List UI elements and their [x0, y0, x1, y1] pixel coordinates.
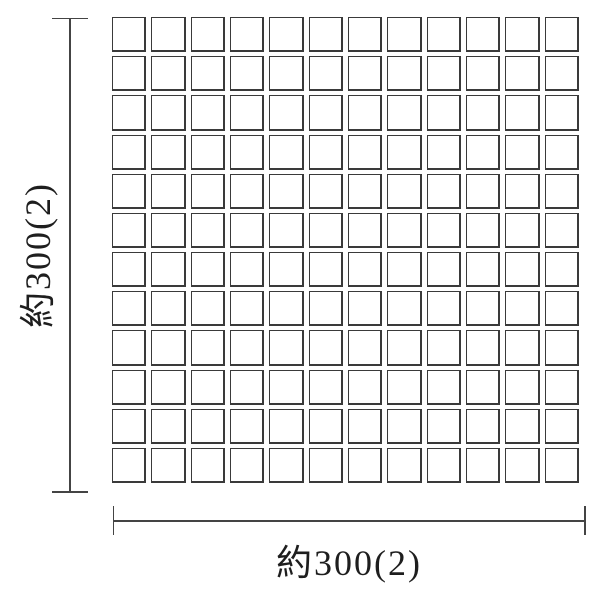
- tile: [505, 17, 539, 52]
- tile: [269, 95, 303, 130]
- tile: [151, 330, 185, 365]
- tile: [427, 174, 461, 209]
- tile: [387, 252, 421, 287]
- tile: [545, 174, 579, 209]
- tile: [269, 448, 303, 483]
- tile: [309, 330, 343, 365]
- tile: [545, 17, 579, 52]
- tile: [191, 291, 225, 326]
- tile: [112, 174, 146, 209]
- tile: [348, 252, 382, 287]
- tile: [466, 409, 500, 444]
- tile: [348, 95, 382, 130]
- horizontal-dimension-cap-right: [584, 506, 586, 535]
- tile: [348, 56, 382, 91]
- tile: [230, 95, 264, 130]
- tile: [505, 95, 539, 130]
- tile: [269, 409, 303, 444]
- tile: [112, 330, 146, 365]
- tile: [112, 213, 146, 248]
- tile: [112, 252, 146, 287]
- tile: [387, 95, 421, 130]
- tile: [466, 291, 500, 326]
- tile: [269, 17, 303, 52]
- tile: [427, 448, 461, 483]
- tile: [348, 409, 382, 444]
- tile: [151, 95, 185, 130]
- tile: [269, 135, 303, 170]
- tile: [230, 448, 264, 483]
- tile: [466, 95, 500, 130]
- tile: [191, 135, 225, 170]
- tile: [230, 370, 264, 405]
- tile: [348, 291, 382, 326]
- tile: [191, 174, 225, 209]
- tile: [427, 17, 461, 52]
- tile: [466, 448, 500, 483]
- tile: [348, 174, 382, 209]
- tile: [112, 409, 146, 444]
- tile: [387, 409, 421, 444]
- tile: [230, 291, 264, 326]
- tile: [387, 448, 421, 483]
- tile: [191, 409, 225, 444]
- tile: [309, 252, 343, 287]
- width-dimension-label: 約300(2): [113, 545, 585, 581]
- tile: [230, 17, 264, 52]
- tile: [387, 213, 421, 248]
- tile: [309, 17, 343, 52]
- tile: [387, 330, 421, 365]
- tile-dimension-diagram: 約300(2) 約300(2): [0, 0, 600, 600]
- tile: [151, 291, 185, 326]
- tile: [387, 291, 421, 326]
- tile: [505, 56, 539, 91]
- tile: [505, 330, 539, 365]
- tile: [191, 252, 225, 287]
- tile: [191, 56, 225, 91]
- tile: [427, 213, 461, 248]
- tile: [348, 370, 382, 405]
- tile: [112, 291, 146, 326]
- tile: [427, 135, 461, 170]
- tile: [505, 252, 539, 287]
- tile: [505, 370, 539, 405]
- tile: [309, 56, 343, 91]
- tile: [230, 213, 264, 248]
- tile: [427, 370, 461, 405]
- vertical-dimension-cap-bottom: [52, 491, 88, 493]
- tile: [230, 174, 264, 209]
- tile: [112, 17, 146, 52]
- tile: [309, 174, 343, 209]
- tile: [466, 213, 500, 248]
- tile: [348, 17, 382, 52]
- tile: [269, 370, 303, 405]
- tile: [545, 291, 579, 326]
- tile: [309, 409, 343, 444]
- tile: [230, 56, 264, 91]
- tile-grid: [112, 17, 579, 483]
- tile: [545, 135, 579, 170]
- tile: [151, 17, 185, 52]
- tile: [230, 409, 264, 444]
- tile: [427, 291, 461, 326]
- tile: [505, 448, 539, 483]
- tile: [466, 252, 500, 287]
- tile: [151, 56, 185, 91]
- tile: [309, 135, 343, 170]
- tile: [151, 213, 185, 248]
- tile: [269, 56, 303, 91]
- tile: [309, 370, 343, 405]
- tile: [505, 213, 539, 248]
- height-dimension-label: 約300(2): [20, 182, 56, 328]
- tile: [151, 252, 185, 287]
- tile: [427, 56, 461, 91]
- tile: [348, 330, 382, 365]
- horizontal-dimension-line: [113, 520, 585, 522]
- tile: [191, 95, 225, 130]
- tile: [427, 95, 461, 130]
- tile: [230, 252, 264, 287]
- tile: [151, 409, 185, 444]
- tile: [269, 213, 303, 248]
- horizontal-dimension-cap-left: [113, 506, 115, 535]
- tile: [545, 252, 579, 287]
- tile: [269, 252, 303, 287]
- tile: [466, 17, 500, 52]
- tile: [191, 370, 225, 405]
- tile: [545, 448, 579, 483]
- tile: [545, 56, 579, 91]
- tile: [505, 291, 539, 326]
- tile: [545, 409, 579, 444]
- tile: [387, 135, 421, 170]
- tile: [112, 135, 146, 170]
- tile: [151, 370, 185, 405]
- tile: [191, 448, 225, 483]
- tile: [387, 370, 421, 405]
- vertical-dimension-cap-top: [52, 18, 88, 20]
- tile: [348, 448, 382, 483]
- vertical-dimension-line: [69, 18, 71, 492]
- tile: [427, 252, 461, 287]
- tile: [309, 448, 343, 483]
- tile: [466, 135, 500, 170]
- tile: [151, 448, 185, 483]
- tile: [112, 95, 146, 130]
- tile: [309, 95, 343, 130]
- tile: [545, 213, 579, 248]
- tile: [545, 370, 579, 405]
- tile: [151, 135, 185, 170]
- tile: [427, 330, 461, 365]
- tile: [427, 409, 461, 444]
- tile: [545, 330, 579, 365]
- tile: [348, 213, 382, 248]
- tile: [387, 56, 421, 91]
- tile: [387, 17, 421, 52]
- tile: [505, 174, 539, 209]
- tile: [348, 135, 382, 170]
- tile: [466, 370, 500, 405]
- tile: [387, 174, 421, 209]
- tile: [269, 330, 303, 365]
- tile: [230, 135, 264, 170]
- tile: [505, 409, 539, 444]
- tile: [269, 174, 303, 209]
- tile: [545, 95, 579, 130]
- tile: [269, 291, 303, 326]
- tile: [151, 174, 185, 209]
- tile: [191, 17, 225, 52]
- tile: [112, 370, 146, 405]
- tile: [112, 56, 146, 91]
- tile: [466, 330, 500, 365]
- tile: [466, 56, 500, 91]
- tile: [466, 174, 500, 209]
- tile: [191, 330, 225, 365]
- tile: [309, 213, 343, 248]
- tile: [230, 330, 264, 365]
- tile: [505, 135, 539, 170]
- tile: [191, 213, 225, 248]
- tile: [112, 448, 146, 483]
- tile: [309, 291, 343, 326]
